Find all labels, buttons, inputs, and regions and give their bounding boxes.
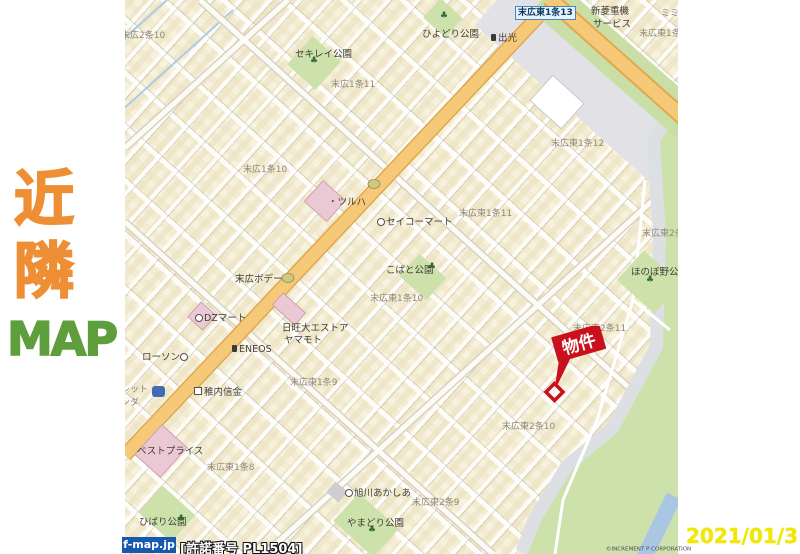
district-label: ミミ <box>661 6 678 19</box>
national-route-badge <box>152 386 165 397</box>
park-tree-icon: ♣ <box>368 526 376 535</box>
district-label: 末広2条10 <box>125 28 165 41</box>
poi-label: 出光 <box>491 30 517 44</box>
poi-label: セキレイ公園 <box>295 46 352 60</box>
route-badge <box>368 180 380 189</box>
fmap-logo: f-map.jp <box>122 537 176 553</box>
park-tree-icon: ♣ <box>310 57 318 66</box>
poi-label: サービス <box>593 16 631 30</box>
route-badge <box>282 274 294 283</box>
district-label: 末広東1条11 <box>459 206 512 219</box>
poi-label: ひよどり公園 <box>422 26 479 40</box>
road-name-sign: 末広東1条13 <box>515 6 576 20</box>
marker-diamond <box>546 384 563 401</box>
poi-label: ENEOS <box>232 344 272 355</box>
park-tree-icon: ♣ <box>177 515 185 524</box>
poi-label: 末広ボデー <box>235 271 283 285</box>
district-label: 末広東1条9 <box>290 375 337 388</box>
title-kanji-2: 隣 <box>14 242 74 302</box>
circle-icon <box>377 218 385 226</box>
gas-icon <box>232 345 237 352</box>
district-label: ンダ <box>125 395 139 408</box>
marker-banner: 物件 <box>551 326 606 362</box>
page: 近 隣 MAP <box>0 0 800 554</box>
district-label: 末広東1条8 <box>207 460 254 473</box>
poi-label: ローソン <box>142 349 189 363</box>
district-label: 末広東2条9 <box>412 495 459 508</box>
district-label: レット <box>125 382 148 395</box>
district-label: 末広東1条10 <box>370 291 423 304</box>
poi-label: こばと公園 <box>386 262 434 276</box>
circle-icon <box>345 489 353 497</box>
district-label: 末広1条10 <box>243 162 287 175</box>
title-kanji-1: 近 <box>14 170 74 230</box>
district-label: 末広東1条1 <box>639 26 678 39</box>
poi-label: DZマート <box>195 310 246 324</box>
map-canvas: 末広2条10末広1条11末広1条10末広東1条12末広東1条11末広東1条10末… <box>125 0 678 554</box>
district-label: 末広東2条 <box>642 226 678 239</box>
district-label: 末広東2条10 <box>502 419 555 432</box>
park-tree-icon: ♣ <box>428 263 436 272</box>
license-number: [許諾番号 PL1504] <box>180 538 302 554</box>
poi-label: 新菱重機 <box>591 3 629 17</box>
copyright-notice: ©INCREMENT P CORPORATION <box>606 546 691 552</box>
district-label: 末広東1条12 <box>551 136 604 149</box>
gas-icon <box>491 34 496 41</box>
poi-label: セイコーマート <box>377 214 453 228</box>
poi-label: 旭川あかしあ <box>345 485 411 499</box>
property-marker: 物件 <box>540 326 612 414</box>
park-tree-icon: ♣ <box>646 276 654 285</box>
poi-label: ・ツルハ <box>328 194 366 208</box>
park-tree-icon: ♣ <box>440 12 448 21</box>
square-icon <box>194 387 202 395</box>
poi-label: ほのぼ野公園 <box>631 264 678 278</box>
title-map-label: MAP <box>7 316 116 362</box>
poi-label: ベストプライス <box>137 443 203 457</box>
district-label: 末広1条11 <box>331 77 375 90</box>
date-stamp: 2021/01/31 <box>686 524 800 548</box>
circle-icon <box>195 314 203 322</box>
circle-icon <box>180 353 188 361</box>
poi-label: ヤマモト <box>284 332 322 346</box>
poi-label: 稚内信金 <box>194 384 242 398</box>
